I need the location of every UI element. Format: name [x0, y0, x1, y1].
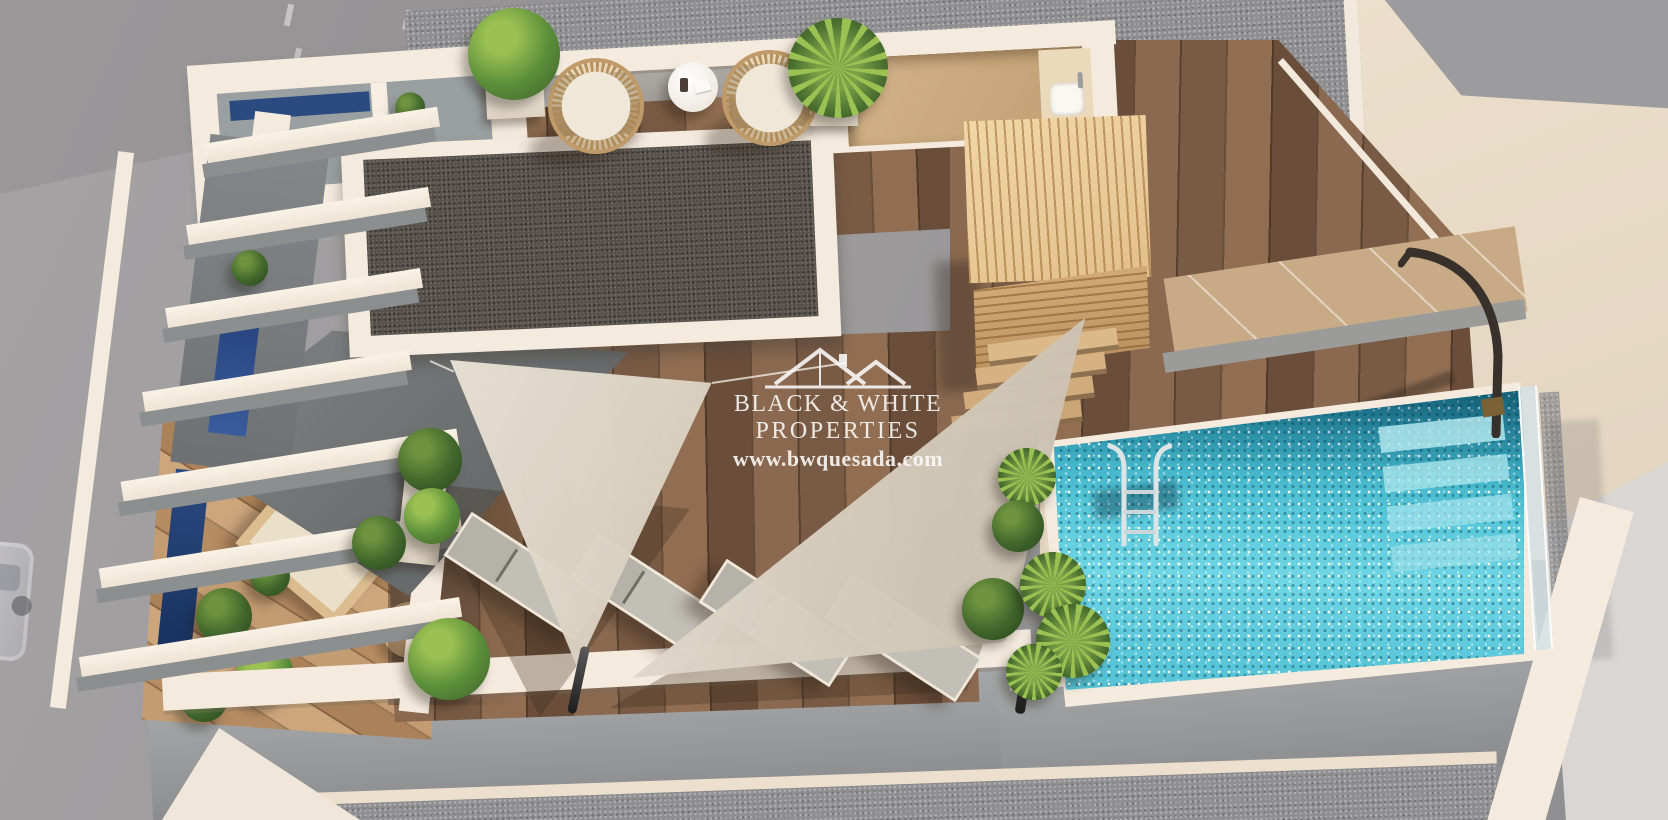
planter-bush	[352, 516, 406, 570]
louver-slot-plant	[232, 250, 268, 286]
poolside-yucca	[998, 448, 1056, 506]
poolside-yucca	[1006, 644, 1062, 700]
car-wheel	[11, 595, 33, 617]
poolside-plant	[962, 578, 1024, 640]
pool-ladder	[1106, 434, 1172, 546]
egg-chair	[548, 58, 644, 154]
watermark-line2: PROPERTIES	[688, 419, 988, 444]
stair-handrail	[1398, 238, 1513, 438]
planter-bush	[398, 428, 462, 492]
parked-car-ghost	[0, 540, 35, 663]
poolside-plant	[992, 500, 1044, 552]
planter-bush	[404, 488, 460, 544]
side-table	[668, 62, 718, 112]
car-windshield	[0, 562, 21, 591]
cube-top-face	[964, 115, 1152, 283]
west-facade-edge	[50, 151, 134, 709]
house-rooflines-icon	[763, 340, 913, 392]
potted-bush	[468, 8, 560, 100]
aerial-villa-render: BLACK & WHITE PROPERTIES www.bwquesada.c…	[0, 0, 1668, 820]
watermark-line1: BLACK & WHITE	[688, 392, 988, 417]
potted-palm	[788, 18, 888, 118]
terrace-bush	[408, 618, 490, 700]
table-item-card	[693, 78, 711, 94]
watermark: BLACK & WHITE PROPERTIES www.bwquesada.c…	[688, 340, 988, 471]
sauna-cube	[964, 115, 1161, 371]
table-item-dark	[680, 78, 688, 92]
kitchen-faucet	[1077, 72, 1083, 88]
watermark-url: www.bwquesada.com	[688, 448, 988, 471]
gravel-roof-infill	[363, 140, 818, 335]
pool-steps	[1378, 414, 1524, 636]
